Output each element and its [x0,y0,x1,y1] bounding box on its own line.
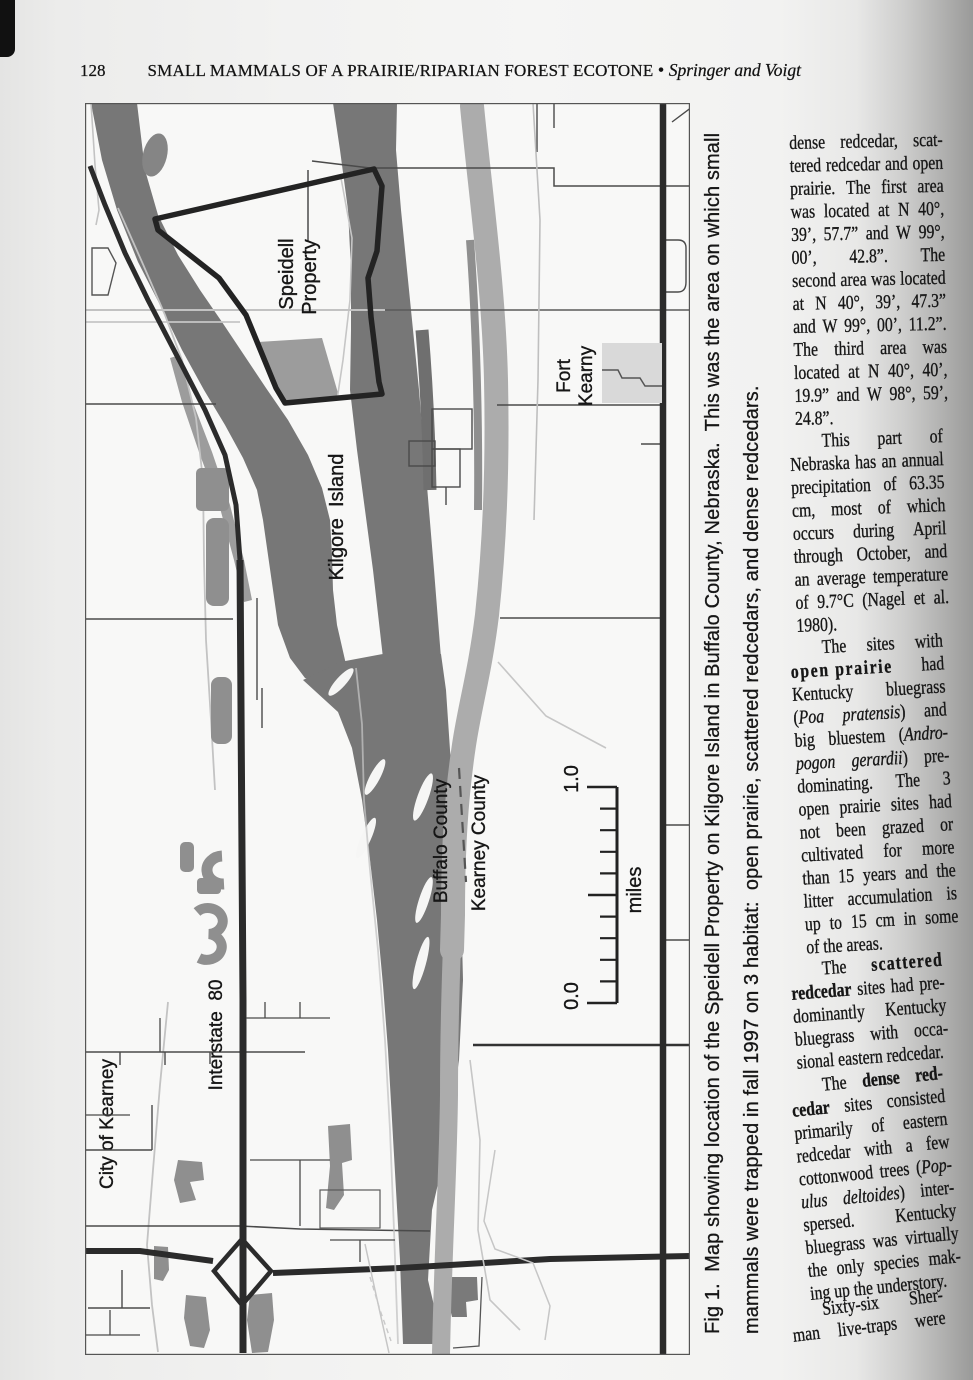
svg-text:City of Kearney: City of Kearney [97,1059,118,1189]
svg-text:Kearny: Kearny [576,345,597,406]
svg-text:0.0: 0.0 [561,982,583,1010]
svg-text:miles: miles [624,867,646,914]
svg-text:Fort: Fort [554,358,575,393]
svg-text:Kearney County: Kearney County [469,774,490,911]
svg-text:1.0: 1.0 [561,765,583,793]
svg-text:Property: Property [299,239,321,315]
svg-text:Interstate 80: Interstate 80 [206,980,227,1091]
svg-text:Kilgore Island: Kilgore Island [326,454,348,581]
svg-text:Buffalo County: Buffalo County [431,778,452,903]
svg-text:Speidell: Speidell [276,238,298,309]
